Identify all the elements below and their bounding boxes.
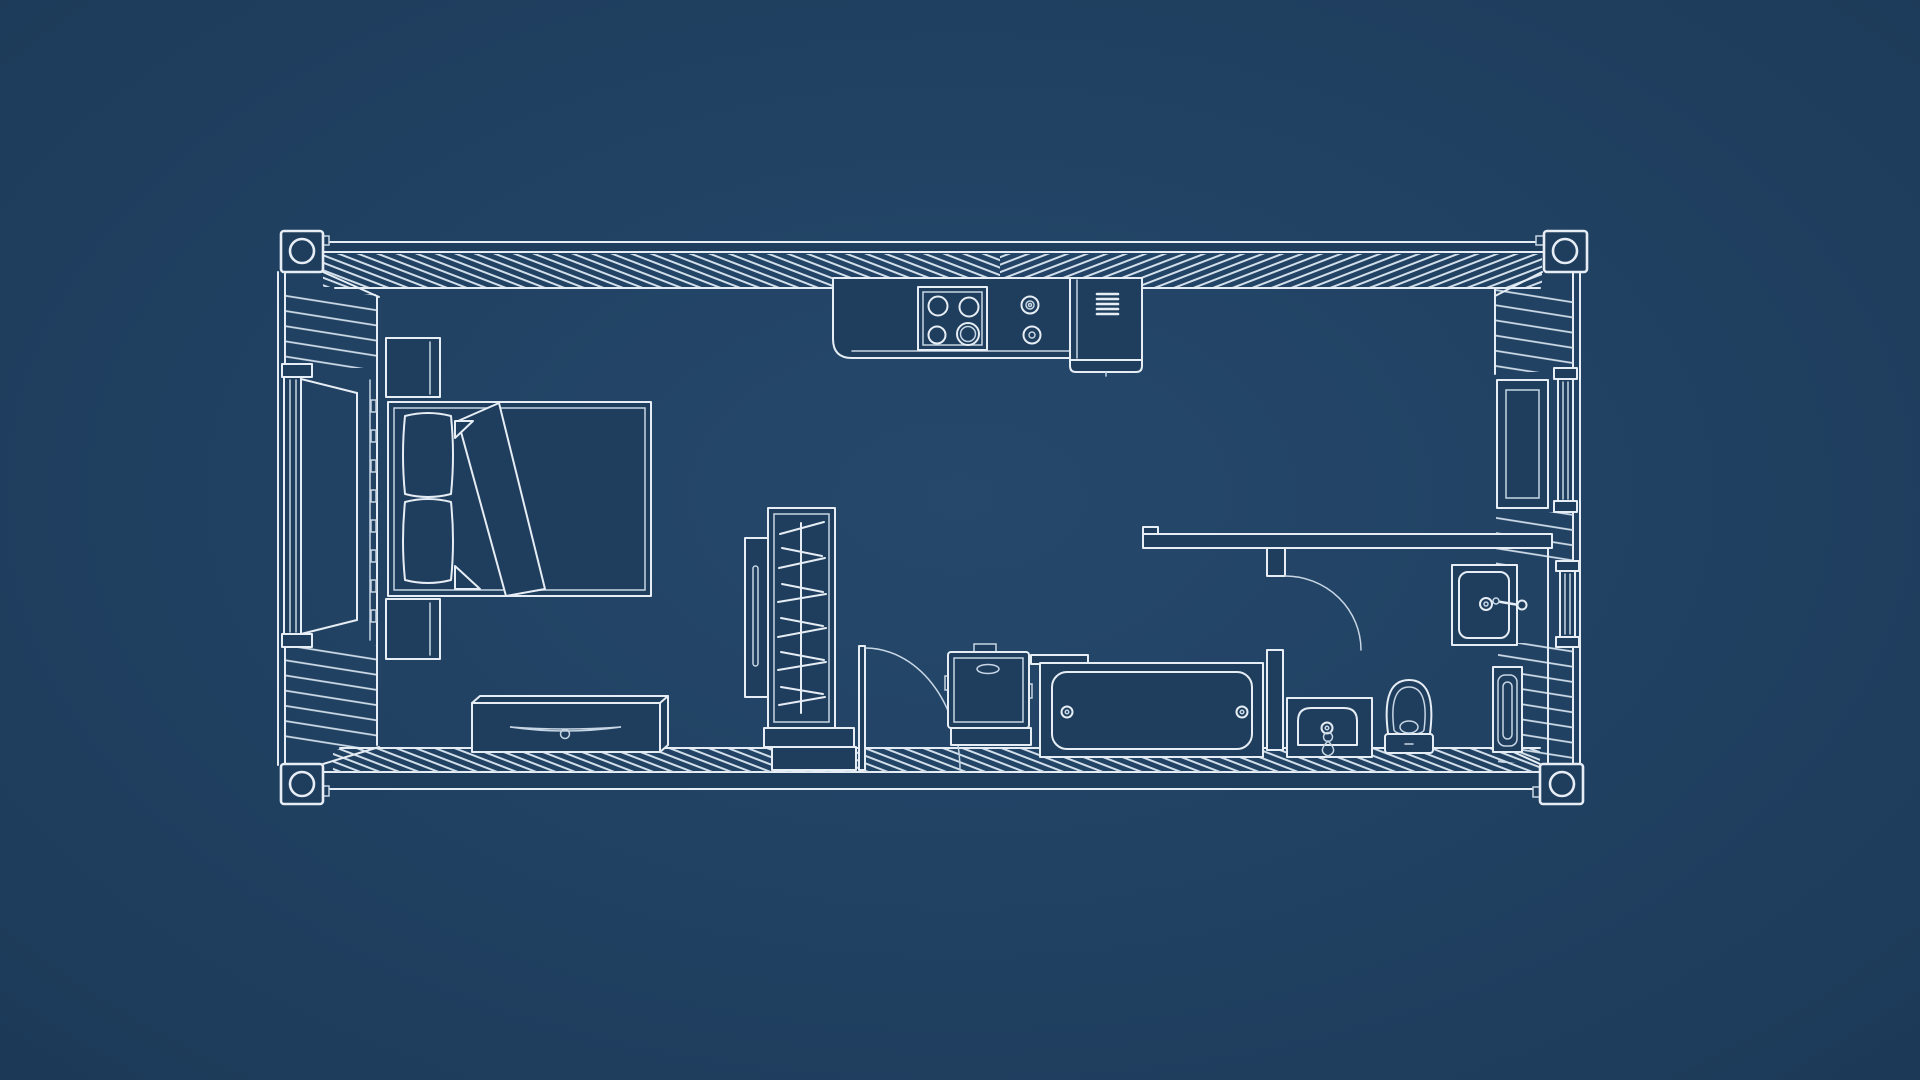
- water-heater: [945, 644, 1032, 745]
- nightstand-upper: [386, 338, 440, 397]
- wardrobe: [764, 508, 856, 770]
- wall-stub: [1267, 650, 1283, 750]
- wardrobe-side-panel: [745, 538, 768, 697]
- blueprint-canvas: [0, 0, 1920, 1080]
- bathroom-door-swing-arc: [1285, 576, 1361, 650]
- top-rail: [322, 242, 1544, 252]
- window-left: [282, 364, 357, 647]
- toilet: [1385, 680, 1433, 753]
- window-right-upper: [1497, 368, 1577, 512]
- faucet-knob: [1518, 601, 1527, 610]
- wall-mounted-sink: [1452, 565, 1527, 645]
- window-right-lower: [1556, 561, 1579, 647]
- dresser: [472, 696, 668, 752]
- storage-cabinet: [1493, 667, 1522, 752]
- wardrobe-base: [764, 728, 856, 770]
- corner-casting-top-left: [281, 231, 329, 272]
- left-wall: [278, 272, 379, 765]
- bathtub: [1031, 655, 1263, 757]
- cooktop: [918, 287, 987, 350]
- corner-casting-bottom-right: [1533, 764, 1583, 804]
- nightstand-lower: [386, 599, 440, 659]
- refrigerator: [1070, 278, 1142, 376]
- pillow-right: [403, 499, 453, 583]
- bed: [388, 402, 651, 596]
- bottom-rail: [322, 772, 1542, 789]
- floor-plan-drawing: [0, 0, 1920, 1080]
- kitchen: [833, 278, 1142, 376]
- corner-casting-top-right: [1536, 231, 1587, 272]
- door-jamb: [1267, 548, 1285, 576]
- door-leaf: [859, 646, 865, 770]
- pillow-left: [403, 413, 453, 497]
- bedroom: [386, 338, 668, 752]
- wall-ticks: [371, 400, 376, 622]
- corner-casting-bottom-left: [281, 764, 329, 804]
- vanity-sink: [1287, 698, 1372, 757]
- window-reveal: [1497, 380, 1548, 508]
